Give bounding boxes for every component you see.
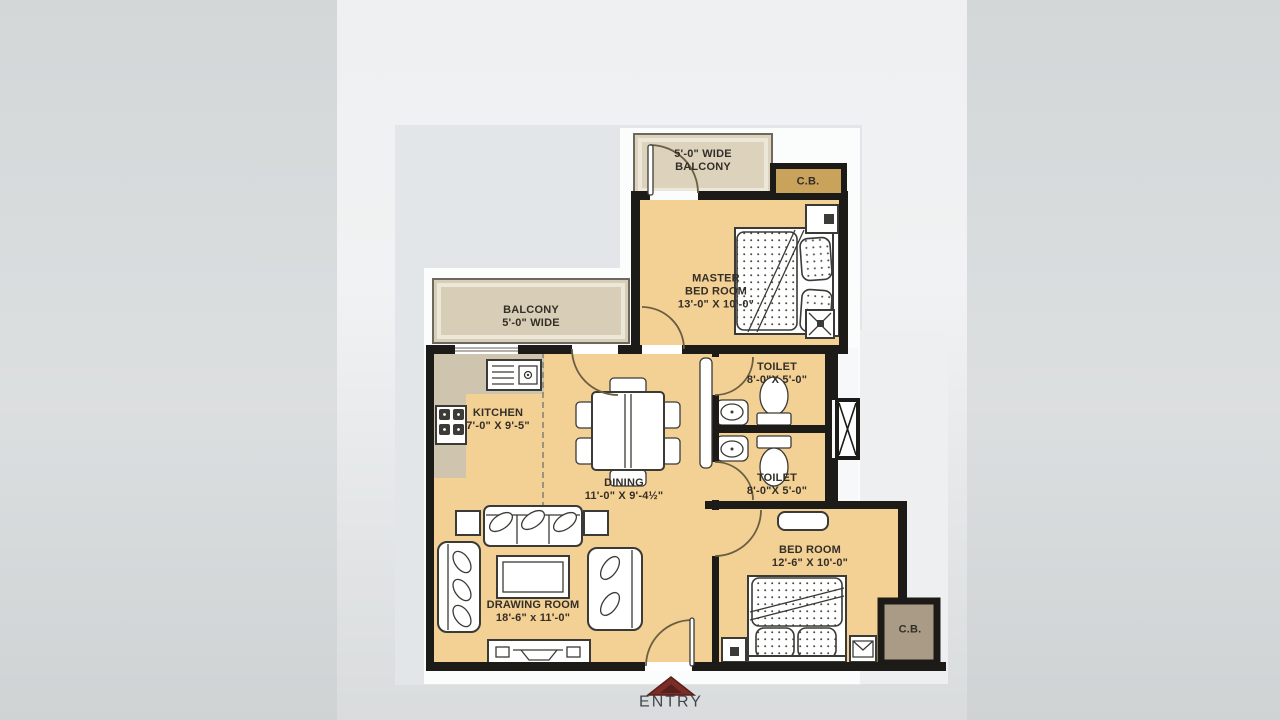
label-bed-room: BED ROOM 12'-6" X 10'-0" <box>772 544 848 570</box>
label-cb-bottom: C.B. <box>899 624 922 637</box>
label-dining: DINING 11'-0" X 9'-4½" <box>585 477 664 503</box>
label-master-bedroom: MASTER BED ROOM 13'-0" X 10'-0" <box>678 273 754 312</box>
stove-hob-icon <box>436 406 466 444</box>
wardrobe-icon <box>806 205 838 233</box>
door-leaf <box>700 358 712 468</box>
sofa-left-icon <box>438 542 480 632</box>
floorplan-drawing <box>0 0 1280 720</box>
tv-unit-icon <box>488 640 590 664</box>
label-toilet-bottom: TOILET 8'-0"X 5'-0" <box>747 472 807 498</box>
duct-icon <box>837 400 858 458</box>
kitchen-sink-icon <box>487 360 541 390</box>
label-entry: ENTRY <box>639 694 703 713</box>
label-kitchen: KITCHEN 7'-0" X 9'-5" <box>466 407 530 433</box>
label-toilet-top: TOILET 8'-0"X 5'-0" <box>747 361 807 387</box>
wardrobe-icon <box>806 310 834 338</box>
sofa-3seat-icon <box>484 506 582 546</box>
bed-icon <box>748 576 846 662</box>
label-drawing-room: DRAWING ROOM 18'-6" x 11'-0" <box>487 599 580 625</box>
label-balcony-left: BALCONY 5'-0" WIDE <box>502 304 560 330</box>
side-table-icon <box>456 511 480 535</box>
nightstand-icon <box>722 638 746 662</box>
sofa-right-icon <box>588 548 642 630</box>
dresser-icon <box>778 512 828 530</box>
side-table-icon <box>584 511 608 535</box>
nightstand-icon <box>850 636 876 662</box>
label-cb-top: C.B. <box>797 176 820 189</box>
coffee-table-icon <box>497 556 569 598</box>
label-balcony-top: 5'-0" WIDE BALCONY <box>674 148 732 174</box>
